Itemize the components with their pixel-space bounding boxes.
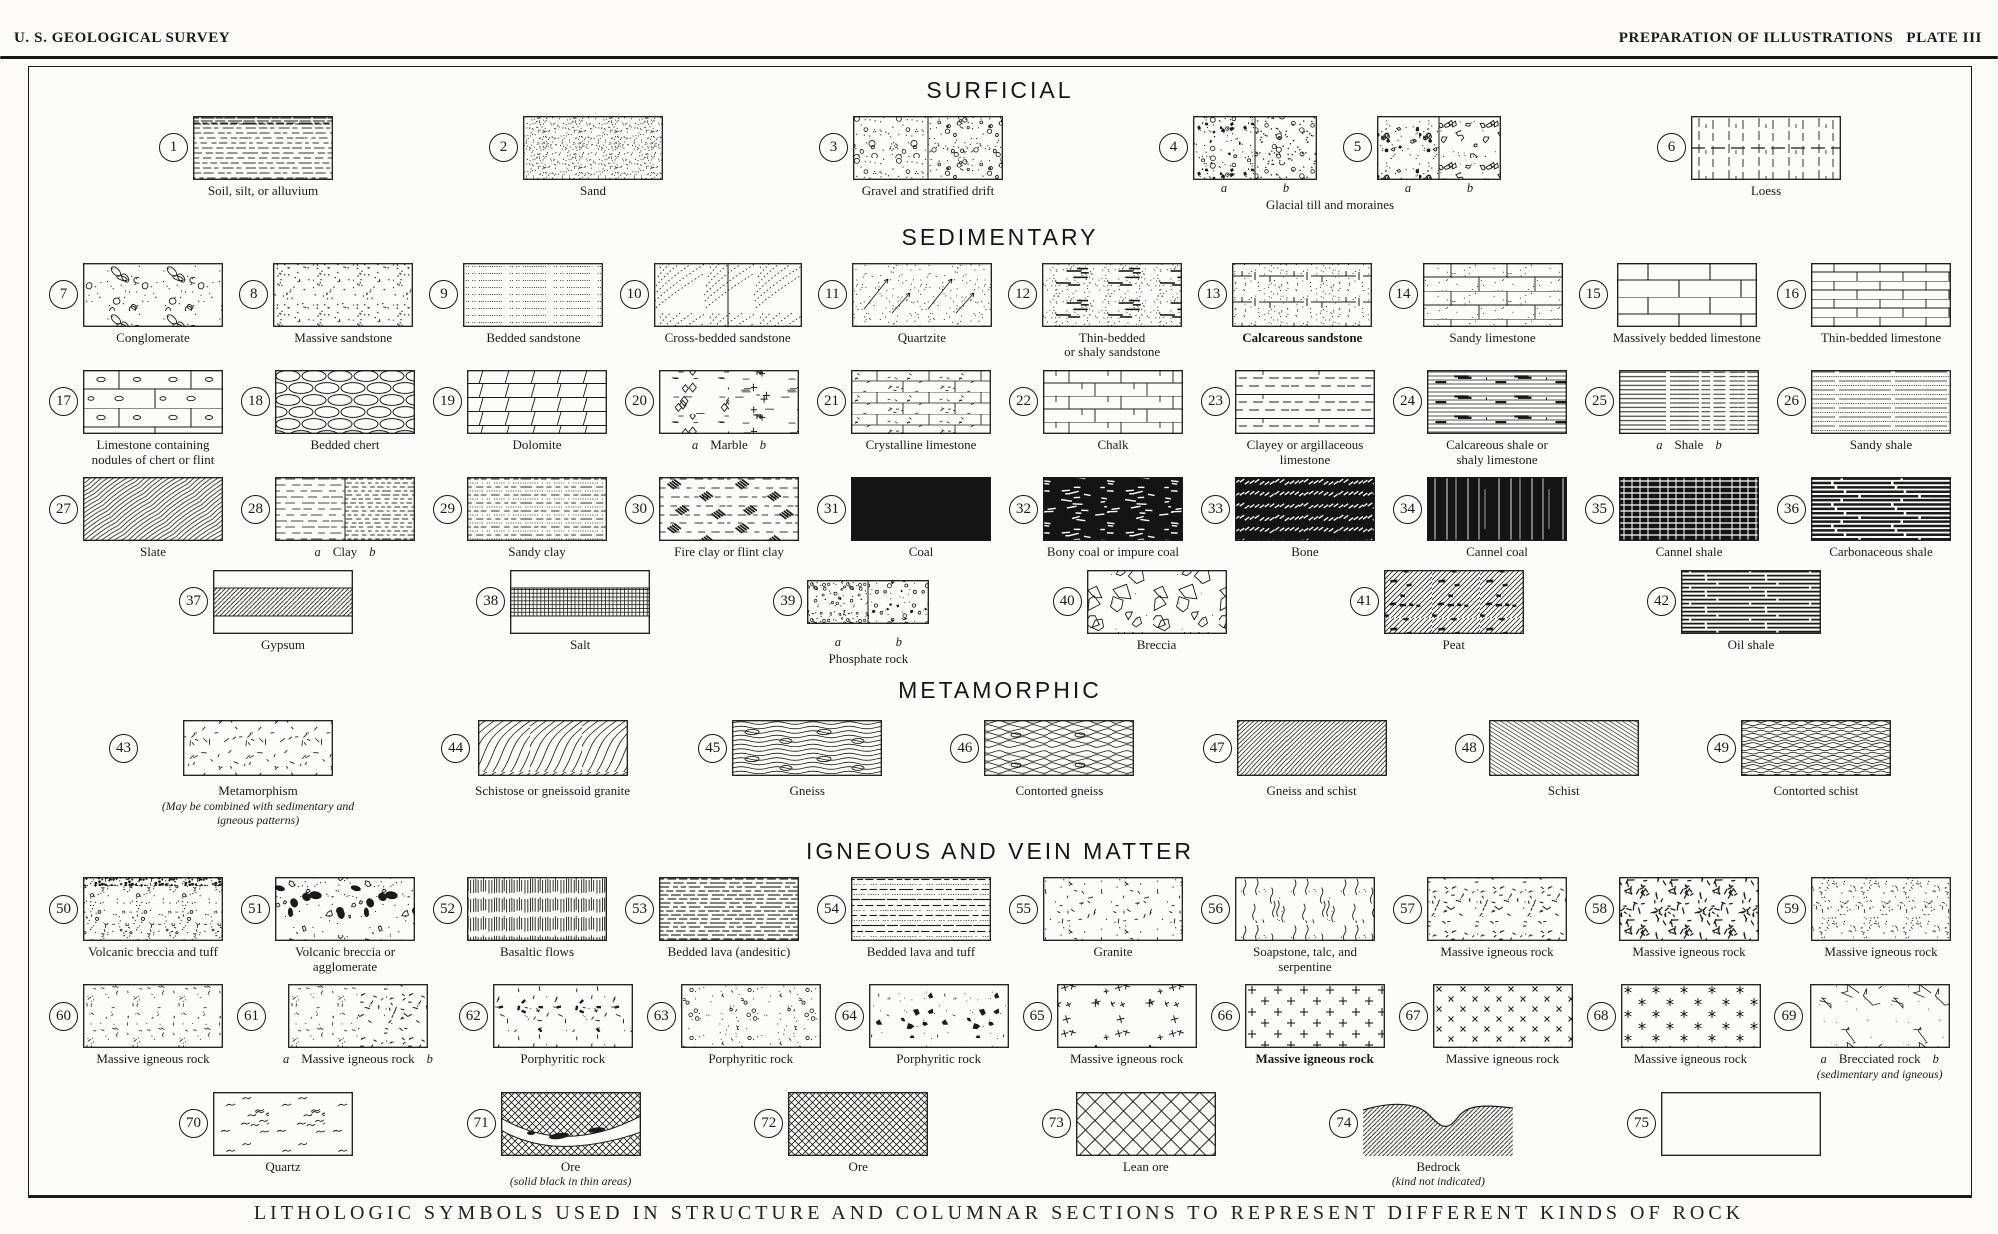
sublabel-b: b (1933, 1052, 1939, 1066)
item-number-18: 18 (241, 387, 270, 416)
legend-item-32: 32 Bony coal or impure coal (1009, 476, 1183, 560)
legend-item-40: 40 Breccia (1053, 569, 1227, 653)
rock-swatch-69 (1810, 983, 1950, 1049)
item-label: Chalk (1097, 438, 1128, 453)
legend-item-21: 21 Crystalline limestone (817, 369, 991, 453)
rock-swatch-3 (853, 115, 1003, 181)
rock-swatch-63 (681, 983, 821, 1049)
item-number-14: 14 (1389, 280, 1418, 309)
item-label: Volcanic breccia oragglomerate (295, 945, 395, 974)
legend-item-33: 33 Bone (1201, 476, 1375, 560)
item-number-38: 38 (476, 587, 505, 616)
item-number-48: 48 (1455, 734, 1484, 763)
sublabel-a: a (314, 545, 320, 559)
rock-swatch-33 (1235, 476, 1375, 542)
item-number-74: 74 (1329, 1109, 1358, 1138)
item-number-58: 58 (1585, 895, 1614, 924)
item-label: Conglomerate (116, 331, 190, 346)
legend-item-37: 37 Gypsum (179, 569, 353, 653)
legend-item-73: 73 Lean ore (1042, 1091, 1216, 1175)
item-label: Basaltic flows (500, 945, 574, 960)
rock-swatch-74 (1363, 1091, 1513, 1157)
item-number-41: 41 (1350, 587, 1379, 616)
legend-item-66: 66 Massive igneous rock (1211, 983, 1385, 1067)
legend-item-13: 13 Calcareous sandstone (1198, 262, 1372, 346)
rock-swatch-1 (193, 115, 333, 181)
item-label: Contorted schist (1774, 784, 1859, 799)
item-number-31: 31 (817, 495, 846, 524)
legend-item-59: 59 Massive igneous rock (1777, 876, 1951, 960)
item-label: aBrecciated rockb (1808, 1052, 1950, 1067)
rock-swatch-61 (288, 983, 428, 1049)
item-number-47: 47 (1203, 734, 1232, 763)
sublabel-a: a (1656, 438, 1662, 452)
item-label: aMassive igneous rockb (271, 1052, 445, 1067)
item-note: (solid black in thin areas) (510, 1175, 631, 1189)
item-label: aClayb (302, 545, 387, 560)
item-number-13: 13 (1198, 280, 1227, 309)
rock-swatch-46 (984, 715, 1134, 781)
rock-swatch-35 (1619, 476, 1759, 542)
item-note: (kind not indicated) (1392, 1175, 1485, 1189)
rock-swatch-7 (83, 262, 223, 328)
scanned-plate-page: { "header": { "left": "U. S. GEOLOGICAL … (0, 0, 1998, 1234)
item-label: Schistose or gneissoid granite (475, 784, 630, 799)
item-label: Cannel coal (1466, 545, 1528, 560)
item-number-15: 15 (1579, 280, 1608, 309)
item-number-26: 26 (1777, 387, 1806, 416)
rock-swatch-58 (1619, 876, 1759, 942)
legend-item-12: 12 Thin-beddedor shaly sandstone (1008, 262, 1182, 360)
item-label: Bedded sandstone (486, 331, 580, 346)
item-label: Massive igneous rock (1824, 945, 1937, 960)
legend-item-25: 25 aShaleb (1585, 369, 1759, 453)
legend-item-10: 10 Cross-bedded sandstone (620, 262, 802, 346)
item-number-65: 65 (1023, 1002, 1052, 1031)
legend-row: 1 Soil, silt, or alluvium 2 Sand 3 Grave… (39, 115, 1961, 213)
item-label: Volcanic breccia and tuff (88, 945, 218, 960)
rock-swatch-43 (183, 715, 333, 781)
legend-item-20: 20 aMarbleb (625, 369, 799, 453)
legend-item-62: 62 Porphyritic rock (459, 983, 633, 1067)
item-label: Massive igneous rock (1440, 945, 1553, 960)
item-number-44: 44 (441, 734, 470, 763)
legend-item-16: 16 Thin-bedded limestone (1777, 262, 1951, 346)
rock-swatch-60 (83, 983, 223, 1049)
rock-swatch-62 (493, 983, 633, 1049)
section-title: METAMORPHIC (39, 677, 1961, 704)
item-label: Calcareous sandstone (1242, 331, 1362, 346)
item-label: Granite (1094, 945, 1133, 960)
item-label: Metamorphism (218, 784, 297, 799)
item-number-9: 9 (429, 280, 458, 309)
item-number-6: 6 (1657, 133, 1686, 162)
plate-header-right: PREPARATION OF ILLUSTRATIONS PLATE III (1619, 30, 1982, 47)
rock-swatch-70 (213, 1091, 353, 1157)
item-label: aMarbleb (680, 438, 778, 453)
sublabel-a: a (283, 1052, 289, 1066)
item-number-2: 2 (489, 133, 518, 162)
item-note: (sedimentary and igneous) (1817, 1068, 1943, 1082)
legend-item-44: 44 Schistose or gneissoid granite (441, 715, 630, 799)
item-label: Calcareous shale orshaly limestone (1446, 438, 1548, 467)
rock-swatch-66 (1245, 983, 1385, 1049)
sublabel-b: b (1467, 181, 1473, 195)
item-number-64: 64 (835, 1002, 864, 1031)
legend-row: 60 Massive igneous rock 61 aMassive igne… (39, 983, 1961, 1081)
legend-item-18: 18 Bedded chert (241, 369, 415, 453)
item-number-8: 8 (239, 280, 268, 309)
legend-item-14: 14 Sandy limestone (1389, 262, 1563, 346)
legend-item-67: 67 Massive igneous rock (1399, 983, 1573, 1067)
legend-item-53: 53 Bedded lava (andesitic) (625, 876, 799, 960)
item-label: Lean ore (1123, 1160, 1169, 1175)
item-number-17: 17 (49, 387, 78, 416)
rock-swatch-44 (478, 715, 628, 781)
legend-item-9: 9 Bedded sandstone (429, 262, 603, 346)
item-number-3: 3 (819, 133, 848, 162)
item-label: Ore (848, 1160, 868, 1175)
legend-item-35: 35 Cannel shale (1585, 476, 1759, 560)
rock-swatch-71 (501, 1091, 641, 1157)
rock-swatch-8 (273, 262, 413, 328)
legend-item-61: 61 aMassive igneous rockb (237, 983, 445, 1067)
sublabel-a: a (835, 635, 841, 649)
rock-swatch-32 (1043, 476, 1183, 542)
item-label: Gravel and stratified drift (862, 184, 994, 199)
item-number-23: 23 (1201, 387, 1230, 416)
rock-swatch-2 (523, 115, 663, 181)
legend-item-11: 11 Quartzite (818, 262, 992, 346)
item-label: Sandy limestone (1449, 331, 1535, 346)
item-label: Crystalline limestone (866, 438, 977, 453)
item-label: Massively bedded limestone (1613, 331, 1761, 346)
item-label: Limestone containingnodules of chert or … (92, 438, 215, 467)
legend-item-7: 7 Conglomerate (49, 262, 223, 346)
rock-swatch-14 (1423, 262, 1563, 328)
rock-swatch-15 (1617, 262, 1757, 328)
plate-caption: LITHOLOGIC SYMBOLS USED IN STRUCTURE AND… (0, 1202, 1998, 1225)
rock-swatch-65 (1057, 983, 1197, 1049)
rock-swatch-31 (851, 476, 991, 542)
item-number-71: 71 (467, 1109, 496, 1138)
rock-swatch-36 (1811, 476, 1951, 542)
item-number-27: 27 (49, 495, 78, 524)
legend-item-70: 70 Quartz (179, 1091, 353, 1175)
item-number-55: 55 (1009, 895, 1038, 924)
rock-swatch-41 (1384, 569, 1524, 635)
item-label: Ore (561, 1160, 581, 1175)
legend-row: 50 Volcanic breccia and tuff 51 Volcanic… (39, 876, 1961, 974)
item-number-43: 43 (109, 734, 138, 763)
item-number-59: 59 (1777, 895, 1806, 924)
item-number-22: 22 (1009, 387, 1038, 416)
item-label: Porphyritic rock (896, 1052, 981, 1067)
item-number-20: 20 (625, 387, 654, 416)
header-rule (0, 56, 1998, 59)
rock-swatch-22 (1043, 369, 1183, 435)
rock-swatch-50 (83, 876, 223, 942)
legend-item-63: 63 Porphyritic rock (647, 983, 821, 1067)
sublabel-a: a (1405, 181, 1411, 195)
item-label: Quartz (265, 1160, 300, 1175)
rock-swatch-39 (807, 569, 929, 635)
legend-item-4: 4 ab (1159, 115, 1317, 195)
item-label: Thin-beddedor shaly sandstone (1064, 331, 1160, 360)
sublabel-b: b (896, 635, 902, 649)
sublabel-b: b (1283, 181, 1289, 195)
item-label: Dolomite (512, 438, 561, 453)
legend-item-34: 34 Cannel coal (1393, 476, 1567, 560)
rock-swatch-25 (1619, 369, 1759, 435)
legend-item-60: 60 Massive igneous rock (49, 983, 223, 1067)
item-number-57: 57 (1393, 895, 1422, 924)
item-label: Cross-bedded sandstone (665, 331, 791, 346)
ab-labels: ab (807, 635, 929, 649)
legend-row: 37 Gypsum 38 Salt 39 ab Phosphate rock 4… (39, 569, 1961, 667)
legend-item-56: 56 Soapstone, talc, andserpentine (1201, 876, 1375, 974)
legend-item-46: 46 Contorted gneiss (950, 715, 1134, 799)
item-label: Massive sandstone (294, 331, 392, 346)
legend-item-29: 29 Sandy clay (433, 476, 607, 560)
legend-item-57: 57 Massive igneous rock (1393, 876, 1567, 960)
item-number-75: 75 (1627, 1109, 1656, 1138)
item-label: Clayey or argillaceouslimestone (1247, 438, 1364, 467)
legend-item-19: 19 Dolomite (433, 369, 607, 453)
item-label: Cannel shale (1656, 545, 1723, 560)
sublabel-a: a (692, 438, 698, 452)
item-label: Carbonaceous shale (1829, 545, 1933, 560)
item-number-19: 19 (433, 387, 462, 416)
rock-swatch-19 (467, 369, 607, 435)
legend-item-26: 26 Sandy shale (1777, 369, 1951, 453)
item-label: Bedded chert (311, 438, 380, 453)
legend-item-49: 49 Contorted schist (1707, 715, 1891, 799)
item-note: (May be combined with sedimentary and ig… (143, 800, 373, 827)
item-label: Peat (1443, 638, 1465, 653)
ab-labels: ab (1193, 181, 1317, 195)
rock-swatch-5 (1377, 115, 1501, 181)
rock-swatch-18 (275, 369, 415, 435)
rock-swatch-12 (1042, 262, 1182, 328)
item-number-34: 34 (1393, 495, 1422, 524)
rock-swatch-53 (659, 876, 799, 942)
legend-item-23: 23 Clayey or argillaceouslimestone (1201, 369, 1375, 467)
item-number-45: 45 (698, 734, 727, 763)
legend-item-65: 65 Massive igneous rock (1023, 983, 1197, 1067)
plate-header-left: U. S. GEOLOGICAL SURVEY (14, 30, 230, 47)
rock-swatch-27 (83, 476, 223, 542)
item-number-51: 51 (241, 895, 270, 924)
item-label: Contorted gneiss (1016, 784, 1104, 799)
legend-item-22: 22 Chalk (1009, 369, 1183, 453)
rock-swatch-38 (510, 569, 650, 635)
rock-swatch-23 (1235, 369, 1375, 435)
legend-item-31: 31 Coal (817, 476, 991, 560)
rock-swatch-42 (1681, 569, 1821, 635)
rock-swatch-67 (1433, 983, 1573, 1049)
legend-item-15: 15 Massively bedded limestone (1579, 262, 1761, 346)
item-number-50: 50 (49, 895, 78, 924)
rock-swatch-34 (1427, 476, 1567, 542)
item-number-28: 28 (241, 495, 270, 524)
item-label: Bedded lava (andesitic) (668, 945, 791, 960)
legend-row: 70 Quartz 71 Ore (solid black in thin ar… (39, 1091, 1961, 1189)
item-number-24: 24 (1393, 387, 1422, 416)
item-label: Breccia (1137, 638, 1177, 653)
item-number-16: 16 (1777, 280, 1806, 309)
item-label: Massive igneous rock (1446, 1052, 1559, 1067)
legend-item-5: 5 ab (1343, 115, 1501, 195)
rock-swatch-72 (788, 1091, 928, 1157)
legend-item-71: 71 Ore (solid black in thin areas) (467, 1091, 641, 1189)
legend-item-28: 28 aClayb (241, 476, 415, 560)
item-number-69: 69 (1774, 1002, 1803, 1031)
legend-item-51: 51 Volcanic breccia oragglomerate (241, 876, 415, 974)
legend-item-72: 72 Ore (754, 1091, 928, 1175)
item-number-63: 63 (647, 1002, 676, 1031)
rock-swatch-55 (1043, 876, 1183, 942)
rock-swatch-4 (1193, 115, 1317, 181)
item-number-56: 56 (1201, 895, 1230, 924)
legend-item-68: 68 Massive igneous rock (1587, 983, 1761, 1067)
item-number-40: 40 (1053, 587, 1082, 616)
rock-swatch-47 (1237, 715, 1387, 781)
rock-swatch-11 (852, 262, 992, 328)
rock-swatch-28 (275, 476, 415, 542)
rock-swatch-9 (463, 262, 603, 328)
item-number-4: 4 (1159, 133, 1188, 162)
item-label: Oil shale (1728, 638, 1775, 653)
item-number-37: 37 (179, 587, 208, 616)
item-number-60: 60 (49, 1002, 78, 1031)
rock-swatch-57 (1427, 876, 1567, 942)
item-number-39: 39 (773, 587, 802, 616)
legend-item-64: 64 Porphyritic rock (835, 983, 1009, 1067)
item-number-5: 5 (1343, 133, 1372, 162)
item-label: Gypsum (261, 638, 305, 653)
rock-swatch-49 (1741, 715, 1891, 781)
item-label: Bone (1291, 545, 1318, 560)
item-number-70: 70 (179, 1109, 208, 1138)
legend-item-58: 58 Massive igneous rock (1585, 876, 1759, 960)
legend-item-43: 43 Metamorphism (May be combined with se… (109, 715, 373, 827)
legend-item-39: 39 ab Phosphate rock (773, 569, 929, 667)
item-number-29: 29 (433, 495, 462, 524)
legend-item-2: 2 Sand (489, 115, 663, 199)
legend-item-48: 48 Schist (1455, 715, 1639, 799)
item-number-1: 1 (159, 133, 188, 162)
ab-labels: ab (1377, 181, 1501, 195)
item-label: Sand (580, 184, 606, 199)
item-label: aShaleb (1644, 438, 1733, 453)
item-label: Quartzite (898, 331, 946, 346)
legend-row: 7 Conglomerate 8 Massive sandstone 9 Bed… (39, 262, 1961, 360)
legend-item-75: 75 (1627, 1091, 1821, 1157)
item-number-54: 54 (817, 895, 846, 924)
item-label: Thin-bedded limestone (1821, 331, 1941, 346)
legend-item-41: 41 Peat (1350, 569, 1524, 653)
item-label: Soil, silt, or alluvium (208, 184, 318, 199)
item-number-36: 36 (1777, 495, 1806, 524)
rock-swatch-73 (1076, 1091, 1216, 1157)
item-label: Fire clay or flint clay (674, 545, 784, 560)
item-label: Porphyritic rock (520, 1052, 605, 1067)
item-label: Gneiss (790, 784, 825, 799)
legend-item-45: 45 Gneiss (698, 715, 882, 799)
item-label: Glacial till and moraines (1266, 198, 1394, 213)
item-label: Salt (570, 638, 590, 653)
plate-body: SURFICIAL 1 Soil, silt, or alluvium 2 Sa… (28, 66, 1972, 1198)
rock-swatch-45 (732, 715, 882, 781)
legend-item-8: 8 Massive sandstone (239, 262, 413, 346)
legend-item-54: 54 Bedded lava and tuff (817, 876, 991, 960)
rock-swatch-37 (213, 569, 353, 635)
item-label: Massive igneous rock (96, 1052, 209, 1067)
rock-swatch-48 (1489, 715, 1639, 781)
sublabel-b: b (760, 438, 766, 452)
rock-swatch-59 (1811, 876, 1951, 942)
item-number-7: 7 (49, 280, 78, 309)
item-number-42: 42 (1647, 587, 1676, 616)
rock-swatch-75 (1661, 1091, 1821, 1157)
legend-item-pair: 4 ab 5 ab Glacial till and moraines (1159, 115, 1501, 213)
item-number-11: 11 (818, 280, 847, 309)
item-label: Massive igneous rock (1255, 1052, 1373, 1067)
rock-swatch-17 (83, 369, 223, 435)
legend-item-74: 74 Bedrock (kind not indicated) (1329, 1091, 1513, 1189)
sublabel-b: b (1715, 438, 1721, 452)
rock-swatch-51 (275, 876, 415, 942)
legend-item-55: 55 Granite (1009, 876, 1183, 960)
item-label: Loess (1751, 184, 1781, 199)
legend-item-3: 3 Gravel and stratified drift (819, 115, 1003, 199)
legend-item-36: 36 Carbonaceous shale (1777, 476, 1951, 560)
item-label: Bony coal or impure coal (1047, 545, 1179, 560)
section-title: SURFICIAL (39, 77, 1961, 104)
item-label: Soapstone, talc, andserpentine (1253, 945, 1357, 974)
rock-swatch-13 (1232, 262, 1372, 328)
legend-row: 27 Slate 28 aClayb 29 Sandy clay 30 Fire… (39, 476, 1961, 560)
item-label: Slate (140, 545, 166, 560)
rock-swatch-30 (659, 476, 799, 542)
rock-swatch-6 (1691, 115, 1841, 181)
item-number-67: 67 (1399, 1002, 1428, 1031)
item-number-53: 53 (625, 895, 654, 924)
item-number-68: 68 (1587, 1002, 1616, 1031)
item-label: Porphyritic rock (708, 1052, 793, 1067)
item-label: Massive igneous rock (1634, 1052, 1747, 1067)
item-number-33: 33 (1201, 495, 1230, 524)
item-number-72: 72 (754, 1109, 783, 1138)
rock-swatch-54 (851, 876, 991, 942)
item-number-73: 73 (1042, 1109, 1071, 1138)
legend-item-52: 52 Basaltic flows (433, 876, 607, 960)
legend-item-17: 17 Limestone containingnodules of chert … (49, 369, 223, 467)
section-title: IGNEOUS AND VEIN MATTER (39, 838, 1961, 865)
item-number-10: 10 (620, 280, 649, 309)
item-number-32: 32 (1009, 495, 1038, 524)
rock-swatch-21 (851, 369, 991, 435)
legend-item-1: 1 Soil, silt, or alluvium (159, 115, 333, 199)
item-number-66: 66 (1211, 1002, 1240, 1031)
legend-item-24: 24 Calcareous shale orshaly limestone (1393, 369, 1567, 467)
item-number-25: 25 (1585, 387, 1614, 416)
sublabel-a: a (1820, 1052, 1826, 1066)
item-label: Coal (909, 545, 934, 560)
item-number-46: 46 (950, 734, 979, 763)
rock-swatch-29 (467, 476, 607, 542)
